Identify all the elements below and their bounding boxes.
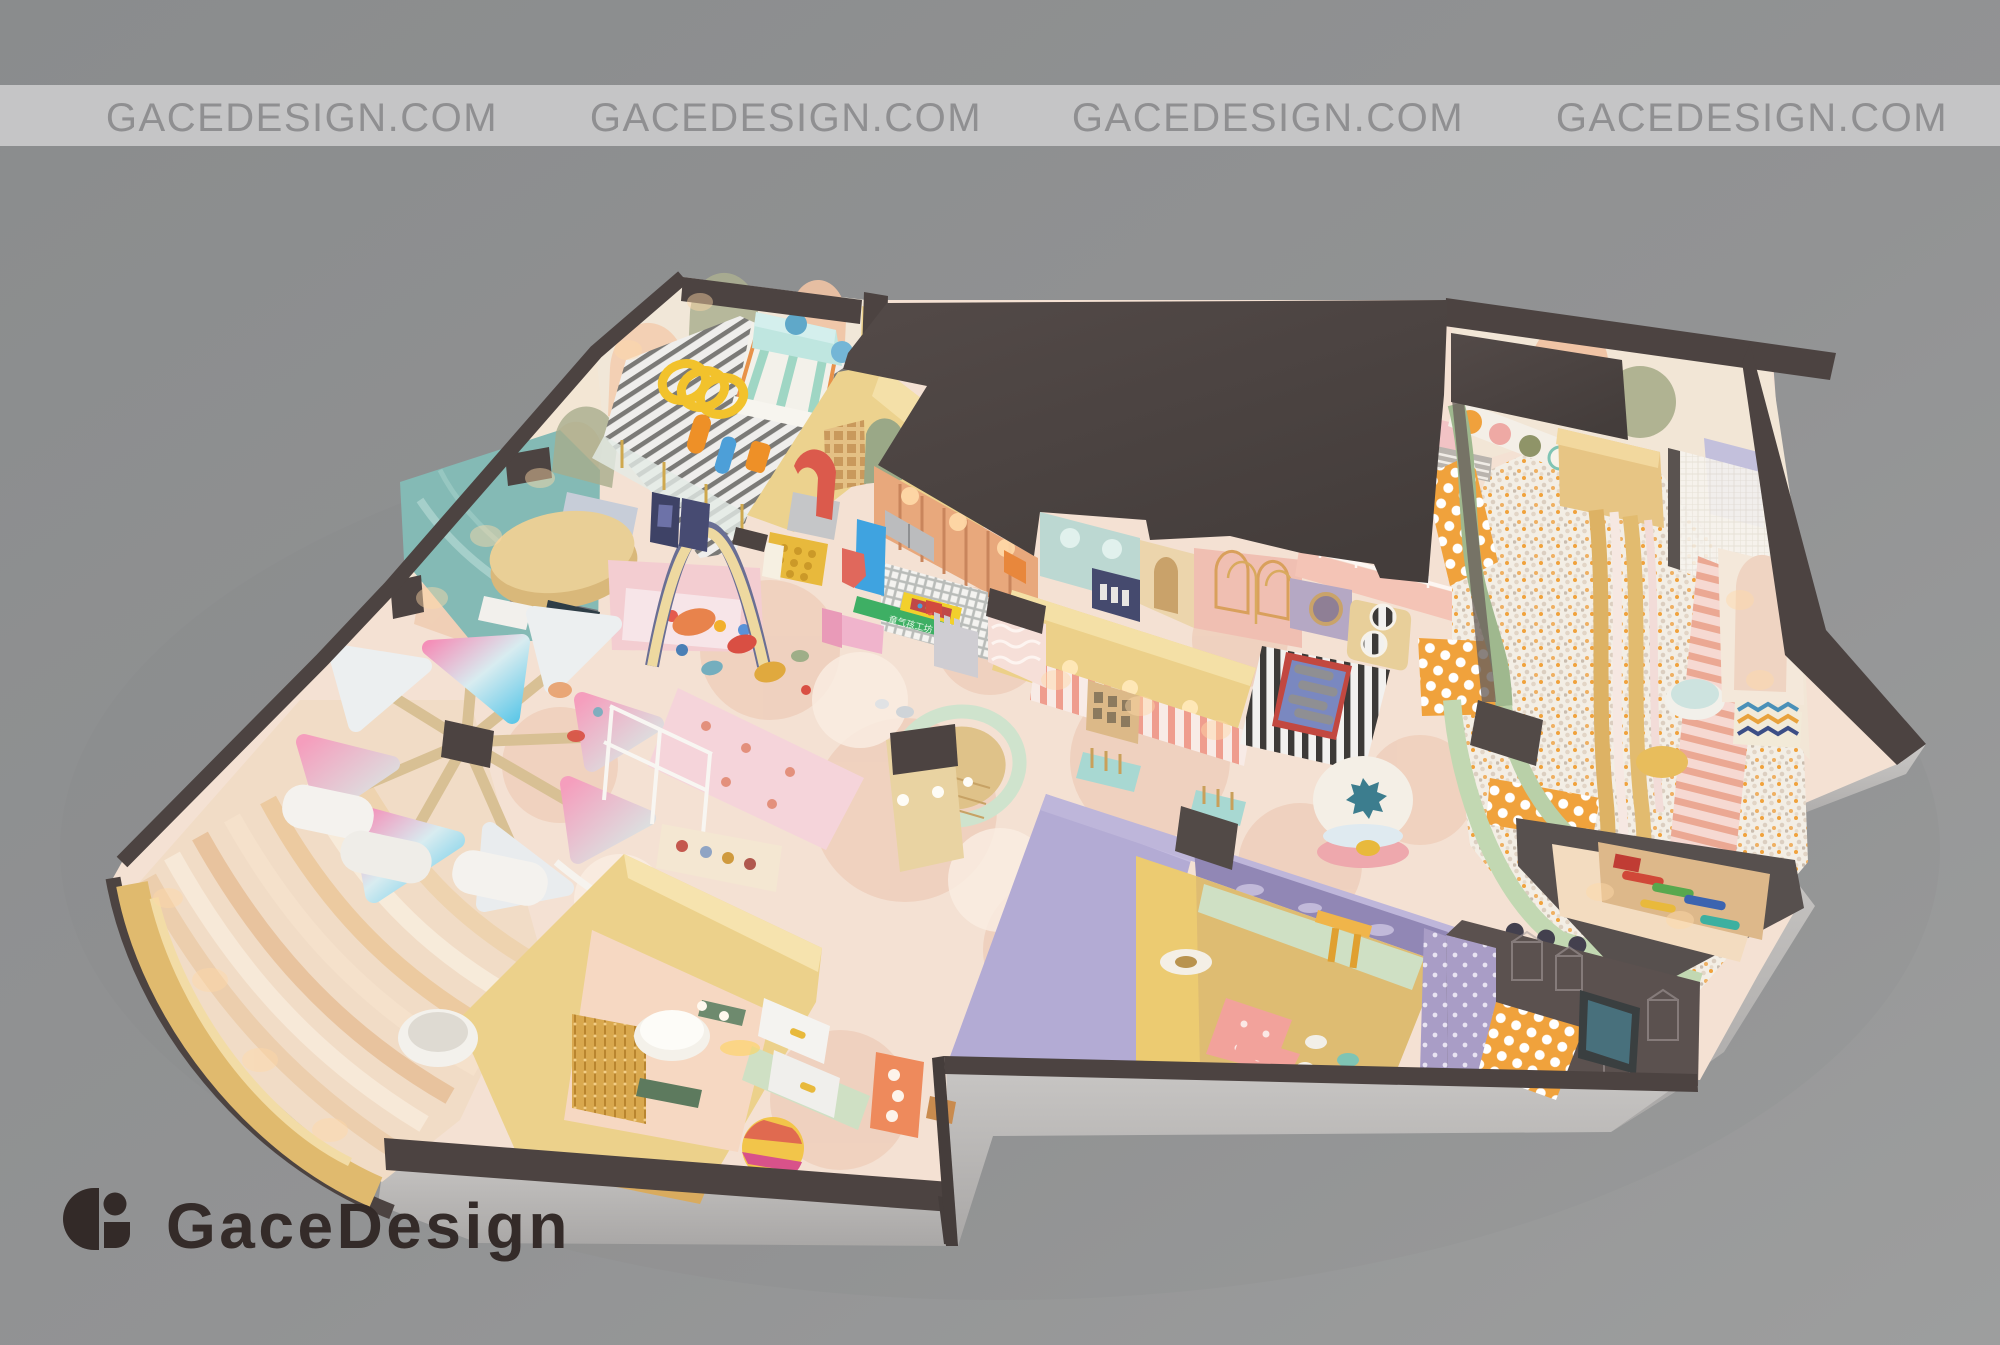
svg-text:GACEDESIGN.COM: GACEDESIGN.COM — [1072, 96, 1464, 140]
svg-text:GACEDESIGN.COM: GACEDESIGN.COM — [590, 96, 982, 140]
svg-text:GACEDESIGN.COM: GACEDESIGN.COM — [1556, 96, 1948, 140]
svg-text:GACEDESIGN.COM: GACEDESIGN.COM — [106, 96, 498, 140]
svg-text:GaceDesign: GaceDesign — [166, 1190, 571, 1262]
